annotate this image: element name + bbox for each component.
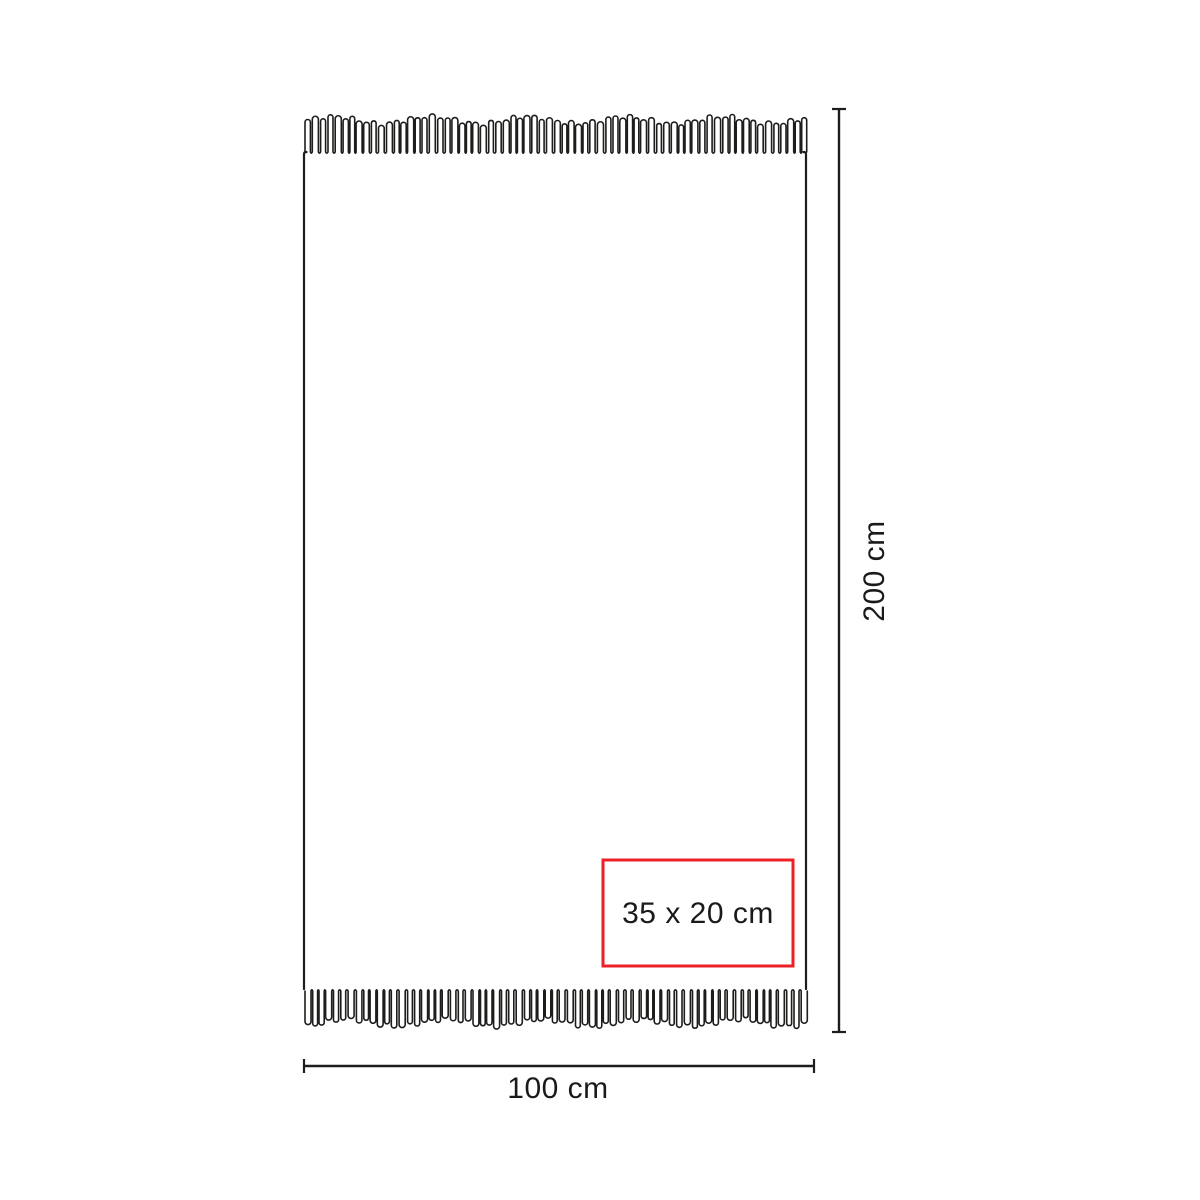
towel-diagram-svg: 200 cm 100 cm 35 x 20 cm	[0, 0, 1200, 1200]
towel-right-edge	[804, 152, 807, 989]
towel-outline	[304, 114, 807, 1029]
height-dimension-label: 200 cm	[858, 520, 891, 621]
towel-fringe-top	[305, 114, 807, 153]
width-dimension: 100 cm	[304, 1059, 814, 1105]
towel-fringe-bottom	[305, 990, 807, 1029]
print-area: 35 x 20 cm	[603, 860, 793, 966]
product-dimension-diagram: 200 cm 100 cm 35 x 20 cm	[0, 0, 1200, 1200]
towel-left-edge	[304, 152, 307, 989]
width-dimension-label: 100 cm	[507, 1072, 608, 1105]
print-area-label: 35 x 20 cm	[622, 897, 774, 930]
height-dimension: 200 cm	[832, 109, 891, 1032]
